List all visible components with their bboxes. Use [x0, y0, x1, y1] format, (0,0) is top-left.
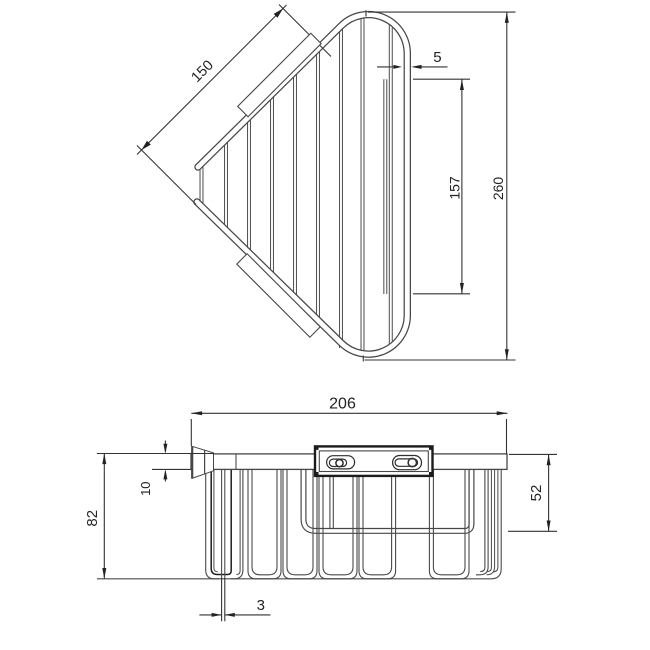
svg-text:260: 260 [490, 177, 506, 201]
svg-text:52: 52 [528, 485, 545, 502]
svg-text:3: 3 [257, 597, 265, 614]
svg-text:150: 150 [188, 57, 216, 85]
svg-text:10: 10 [138, 481, 153, 495]
svg-text:5: 5 [433, 49, 441, 66]
svg-text:206: 206 [329, 396, 356, 413]
svg-text:157: 157 [447, 176, 463, 200]
svg-text:82: 82 [84, 510, 101, 527]
